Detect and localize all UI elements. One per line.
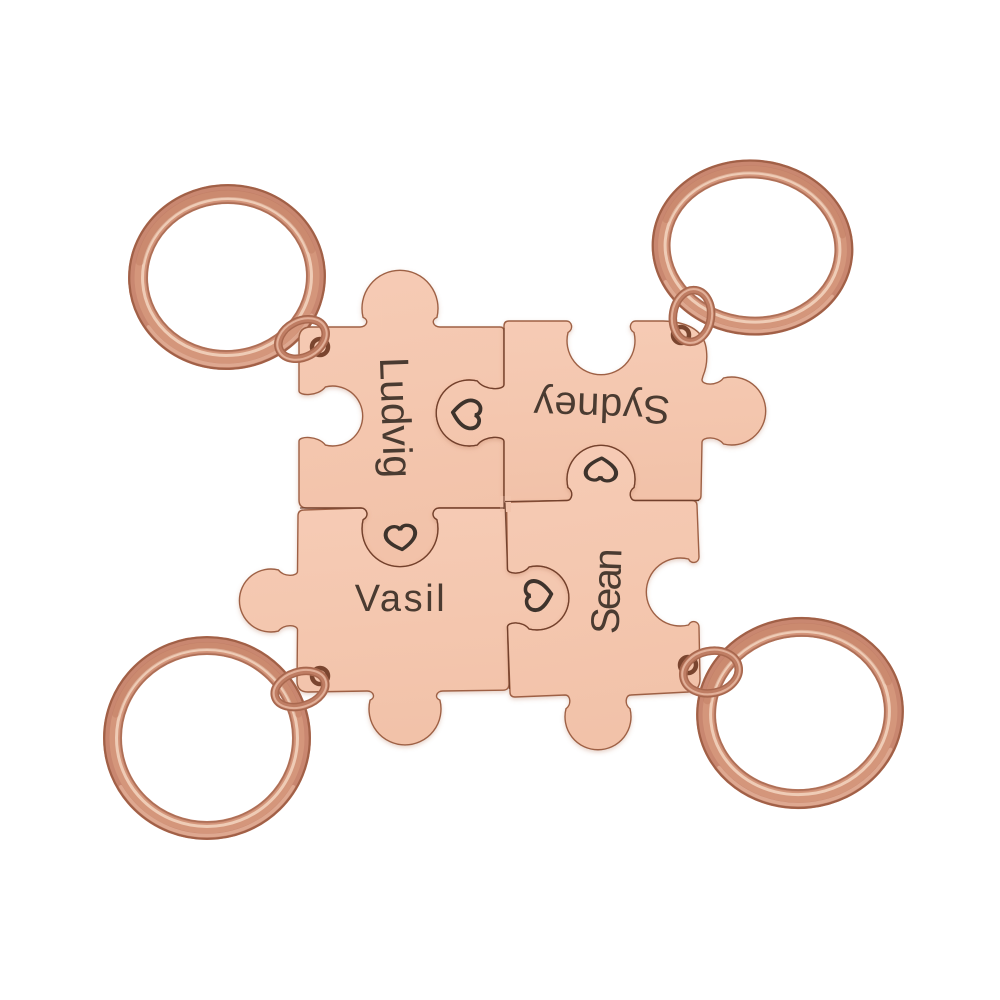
- svg-text:Vasil: Vasil: [355, 578, 448, 620]
- svg-text:Ludvig: Ludvig: [371, 356, 421, 478]
- svg-text:Sean: Sean: [584, 550, 631, 635]
- svg-text:Sydney: Sydney: [532, 383, 670, 432]
